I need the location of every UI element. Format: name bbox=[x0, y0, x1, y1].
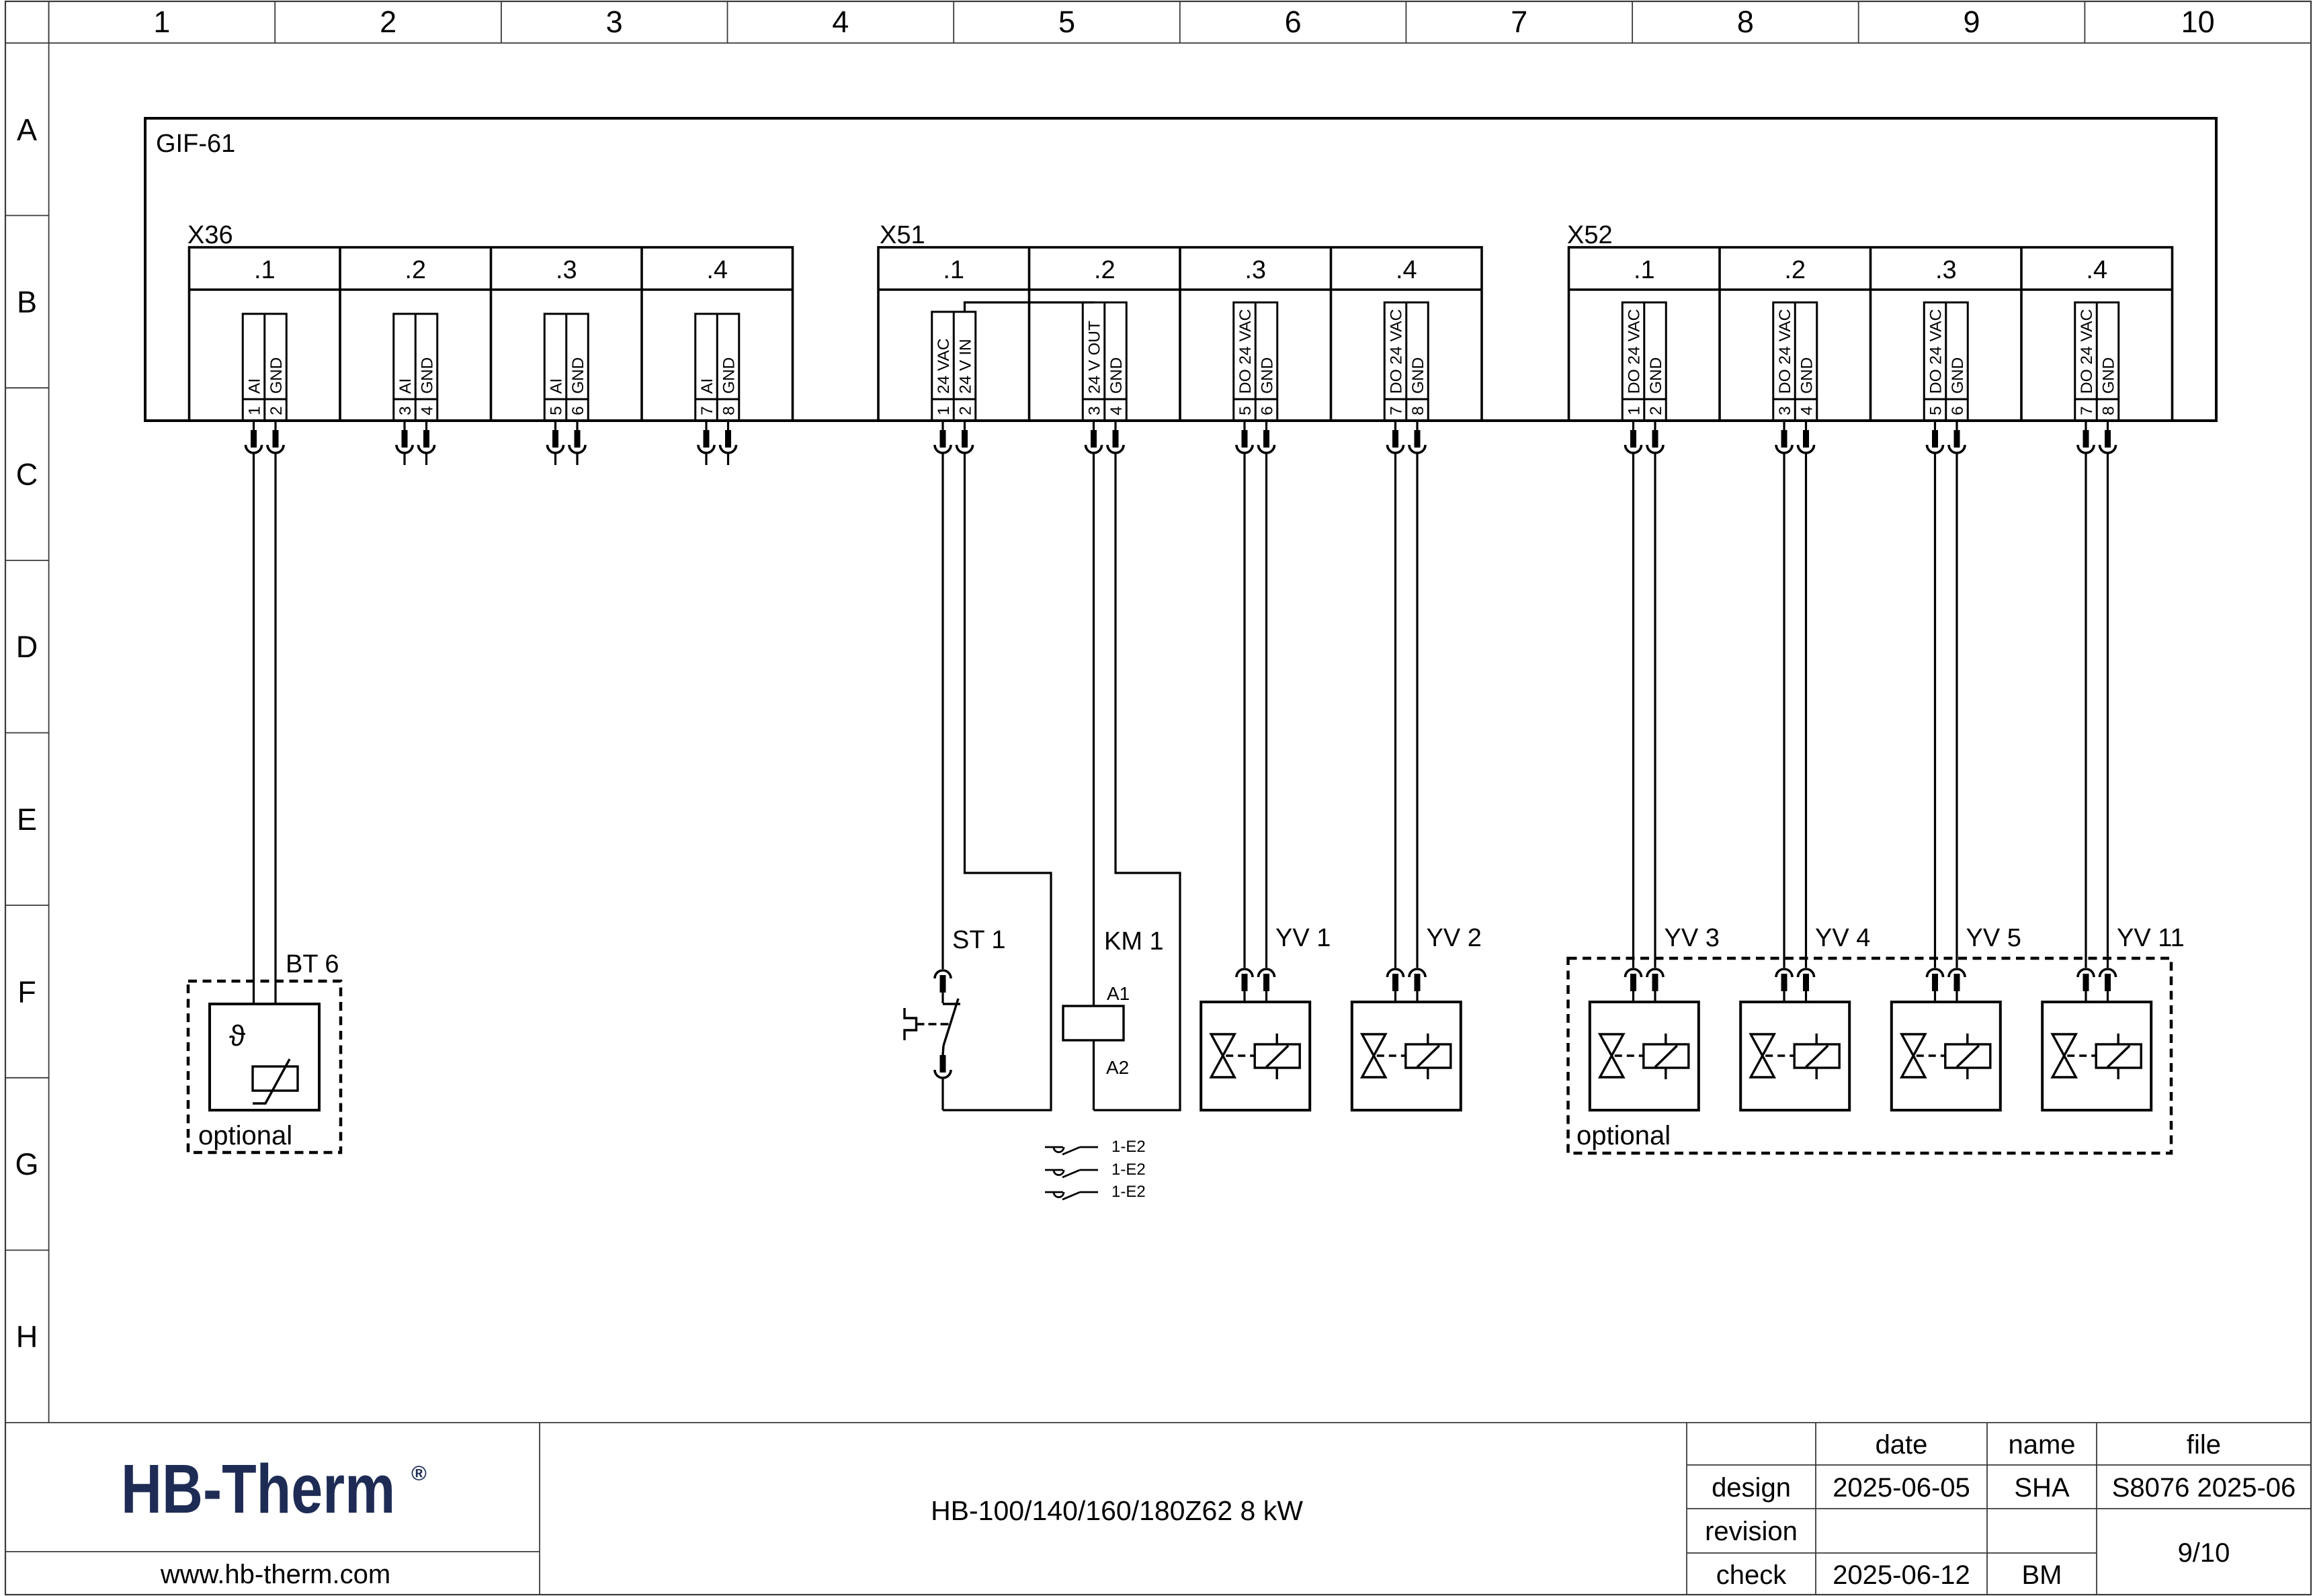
svg-text:YV 3: YV 3 bbox=[1665, 924, 1720, 952]
svg-text:date: date bbox=[1876, 1430, 1928, 1460]
svg-text:YV 1: YV 1 bbox=[1275, 924, 1331, 952]
svg-text:®: ® bbox=[411, 1462, 427, 1485]
svg-text:1: 1 bbox=[1626, 406, 1644, 415]
svg-text:24 VAC: 24 VAC bbox=[935, 338, 953, 394]
svg-text:5: 5 bbox=[1927, 406, 1945, 415]
svg-text:5: 5 bbox=[548, 406, 566, 415]
svg-text:DO 24 VAC: DO 24 VAC bbox=[1388, 309, 1406, 394]
svg-text:file: file bbox=[2187, 1430, 2221, 1460]
svg-text:C: C bbox=[16, 458, 38, 492]
svg-text:.1: .1 bbox=[943, 256, 964, 284]
svg-text:2: 2 bbox=[957, 406, 975, 415]
svg-text:2: 2 bbox=[267, 406, 286, 415]
svg-text:2: 2 bbox=[380, 5, 396, 39]
svg-text:10: 10 bbox=[2181, 5, 2215, 39]
svg-text:24 V OUT: 24 V OUT bbox=[1086, 321, 1104, 394]
svg-text:GND: GND bbox=[1409, 358, 1427, 394]
svg-text:1-E2: 1-E2 bbox=[1111, 1138, 1146, 1156]
svg-text:DO 24 VAC: DO 24 VAC bbox=[1927, 309, 1945, 394]
svg-text:BM: BM bbox=[2022, 1560, 2062, 1590]
svg-text:.2: .2 bbox=[1784, 256, 1806, 284]
svg-text:GIF-61: GIF-61 bbox=[156, 130, 235, 158]
svg-text:check: check bbox=[1716, 1560, 1787, 1590]
svg-text:GND: GND bbox=[2100, 358, 2118, 394]
svg-text:.4: .4 bbox=[1396, 256, 1417, 284]
svg-text:YV 4: YV 4 bbox=[1815, 924, 1870, 952]
svg-text:S8076 2025-06: S8076 2025-06 bbox=[2112, 1473, 2296, 1503]
svg-text:GND: GND bbox=[720, 358, 739, 394]
svg-text:6: 6 bbox=[1259, 406, 1277, 415]
svg-text:9/10: 9/10 bbox=[2178, 1538, 2230, 1568]
svg-text:DO 24 VAC: DO 24 VAC bbox=[1776, 309, 1794, 394]
svg-text:4: 4 bbox=[832, 5, 849, 39]
svg-text:H: H bbox=[16, 1320, 38, 1354]
svg-text:X52: X52 bbox=[1567, 221, 1613, 249]
svg-text:7: 7 bbox=[698, 406, 716, 415]
svg-text:3: 3 bbox=[1086, 406, 1104, 415]
svg-text:7: 7 bbox=[2078, 406, 2096, 415]
svg-text:3: 3 bbox=[606, 5, 623, 39]
svg-text:A1: A1 bbox=[1107, 983, 1130, 1004]
svg-text:.1: .1 bbox=[254, 256, 276, 284]
svg-text:AI: AI bbox=[698, 378, 716, 394]
svg-text:KM 1: KM 1 bbox=[1104, 927, 1164, 956]
svg-text:.4: .4 bbox=[706, 256, 728, 284]
svg-text:optional: optional bbox=[198, 1121, 292, 1150]
svg-text:.2: .2 bbox=[1094, 256, 1116, 284]
svg-text:3: 3 bbox=[1776, 406, 1794, 415]
svg-text:AI: AI bbox=[246, 378, 264, 394]
svg-text:YV 5: YV 5 bbox=[1966, 924, 2021, 952]
svg-text:YV 11: YV 11 bbox=[2117, 924, 2185, 952]
svg-text:.3: .3 bbox=[556, 256, 577, 284]
svg-text:4: 4 bbox=[1107, 406, 1126, 415]
svg-text:GND: GND bbox=[1647, 358, 1665, 394]
svg-text:D: D bbox=[16, 630, 38, 664]
svg-text:.2: .2 bbox=[405, 256, 426, 284]
svg-text:F: F bbox=[17, 974, 36, 1009]
svg-text:www.hb-therm.com: www.hb-therm.com bbox=[160, 1560, 390, 1589]
svg-text:1: 1 bbox=[935, 406, 953, 415]
svg-text:1: 1 bbox=[153, 5, 170, 39]
svg-text:1: 1 bbox=[246, 406, 264, 415]
svg-text:GND: GND bbox=[267, 358, 286, 394]
svg-text:GND: GND bbox=[419, 358, 437, 394]
svg-text:optional: optional bbox=[1576, 1121, 1671, 1150]
svg-text:X51: X51 bbox=[880, 221, 925, 249]
svg-text:.3: .3 bbox=[1245, 256, 1266, 284]
svg-text:DO 24 VAC: DO 24 VAC bbox=[2078, 309, 2096, 394]
svg-text:6: 6 bbox=[1285, 5, 1302, 39]
svg-text:1-E2: 1-E2 bbox=[1111, 1183, 1146, 1201]
svg-text:AI: AI bbox=[548, 378, 566, 394]
svg-text:DO 24 VAC: DO 24 VAC bbox=[1236, 309, 1255, 394]
svg-text:HB-Therm: HB-Therm bbox=[121, 1450, 395, 1527]
svg-text:name: name bbox=[2008, 1430, 2075, 1460]
svg-text:HB-100/140/160/180Z62 8 kW: HB-100/140/160/180Z62 8 kW bbox=[931, 1495, 1303, 1526]
svg-text:8: 8 bbox=[720, 406, 739, 415]
svg-text:5: 5 bbox=[1236, 406, 1255, 415]
svg-text:BT 6: BT 6 bbox=[286, 950, 339, 978]
svg-text:6: 6 bbox=[1949, 406, 1967, 415]
svg-text:4: 4 bbox=[1798, 406, 1816, 415]
svg-text:SHA: SHA bbox=[2014, 1473, 2070, 1503]
svg-text:8: 8 bbox=[2100, 406, 2118, 415]
svg-text:24 V IN: 24 V IN bbox=[957, 339, 975, 394]
svg-text:A: A bbox=[17, 112, 37, 146]
svg-text:6: 6 bbox=[569, 406, 587, 415]
svg-text:9: 9 bbox=[1963, 5, 1980, 39]
svg-text:G: G bbox=[15, 1147, 38, 1181]
svg-text:.1: .1 bbox=[1634, 256, 1655, 284]
svg-text:7: 7 bbox=[1511, 5, 1527, 39]
svg-text:ST 1: ST 1 bbox=[952, 926, 1006, 954]
svg-text:2025-06-05: 2025-06-05 bbox=[1833, 1473, 1970, 1503]
svg-text:1-E2: 1-E2 bbox=[1111, 1161, 1146, 1179]
svg-text:7: 7 bbox=[1388, 406, 1406, 415]
svg-text:GND: GND bbox=[1949, 358, 1967, 394]
svg-text:E: E bbox=[17, 802, 37, 837]
svg-text:DO 24 VAC: DO 24 VAC bbox=[1626, 309, 1644, 394]
svg-text:8: 8 bbox=[1409, 406, 1427, 415]
svg-text:GND: GND bbox=[569, 358, 587, 394]
svg-text:.3: .3 bbox=[1935, 256, 1957, 284]
svg-text:revision: revision bbox=[1705, 1517, 1798, 1546]
svg-text:X36: X36 bbox=[187, 221, 233, 249]
svg-text:B: B bbox=[17, 285, 37, 319]
svg-text:ϑ: ϑ bbox=[229, 1019, 245, 1052]
svg-text:YV 2: YV 2 bbox=[1427, 924, 1482, 952]
svg-text:A2: A2 bbox=[1106, 1057, 1129, 1078]
svg-text:8: 8 bbox=[1737, 5, 1754, 39]
svg-text:GND: GND bbox=[1259, 358, 1277, 394]
svg-text:GND: GND bbox=[1798, 358, 1816, 394]
svg-text:2: 2 bbox=[1647, 406, 1665, 415]
svg-text:2025-06-12: 2025-06-12 bbox=[1833, 1560, 1970, 1590]
svg-text:AI: AI bbox=[396, 378, 415, 394]
svg-text:.4: .4 bbox=[2086, 256, 2107, 284]
svg-text:design: design bbox=[1712, 1473, 1791, 1503]
svg-text:5: 5 bbox=[1058, 5, 1075, 39]
svg-text:3: 3 bbox=[396, 406, 415, 415]
svg-text:4: 4 bbox=[419, 406, 437, 415]
svg-text:GND: GND bbox=[1107, 358, 1126, 394]
